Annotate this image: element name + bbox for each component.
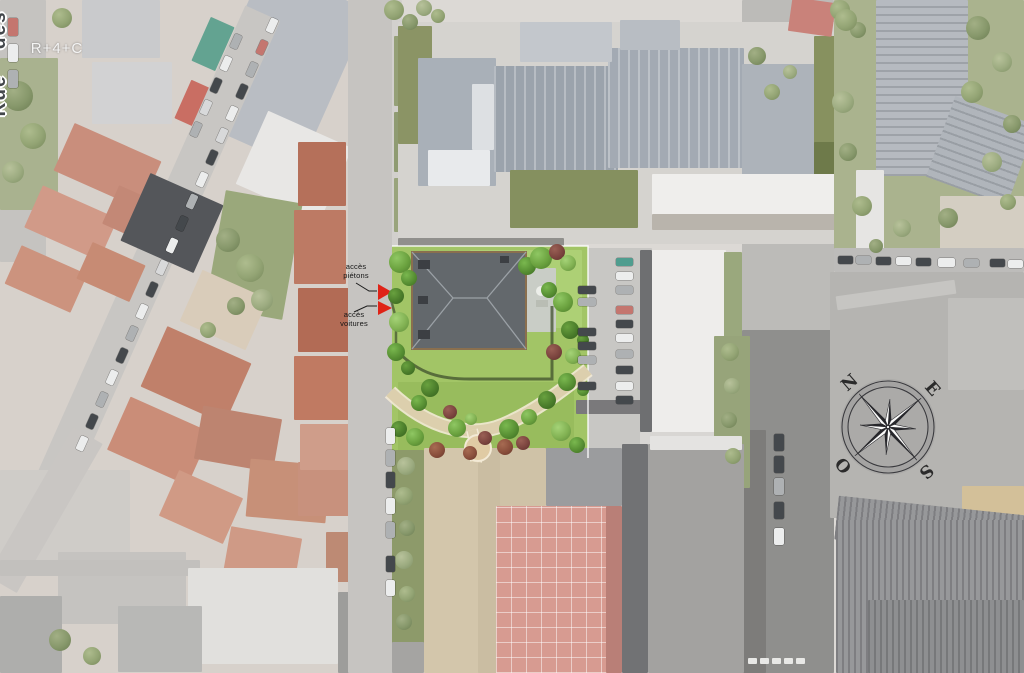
site-plan-map: N E S O Rue des Pavillons R+4+C accès pi… [0,0,1024,673]
garden-plaza [465,435,491,461]
access-leader-line [356,283,377,291]
roof-vent [418,296,428,304]
access-vehicle-label: accès voitures [333,311,375,328]
terrace-table [536,300,548,307]
hedge-line [391,300,396,344]
compass-rose-icon: N E S O [826,365,950,489]
roof-vent [418,330,430,339]
access-arrow-icon [378,284,392,300]
access-arrow-icon [378,301,392,315]
building-height-label: R+4+C [0,0,114,97]
roof-vent [500,256,509,263]
terrace-parasol [536,286,546,296]
overlay-graphics: N E S O [0,0,1024,673]
hedge-line [398,306,552,379]
access-pedestrian-label: accès piétons [337,263,375,280]
roof-vent [418,260,430,269]
